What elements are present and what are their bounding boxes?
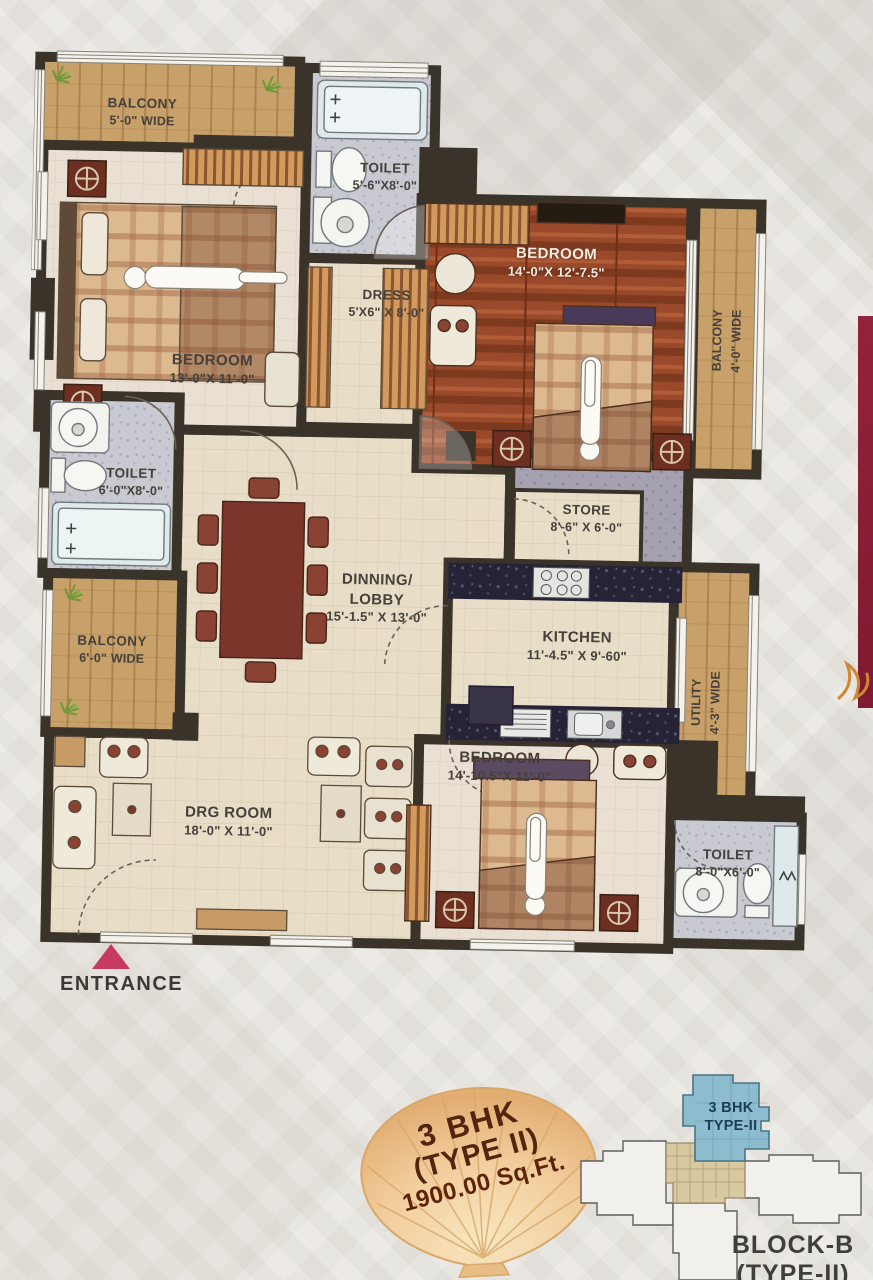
bedside-table-icon bbox=[600, 895, 639, 932]
armchair-icon bbox=[429, 305, 476, 366]
bedside-table-icon bbox=[652, 434, 691, 471]
bathtub-icon bbox=[52, 502, 171, 566]
room-label-balcony-top: BALCONY 5'-0" WIDE bbox=[107, 94, 177, 129]
shower-icon bbox=[773, 826, 799, 926]
sink-icon bbox=[567, 710, 622, 739]
coffee-table-icon bbox=[112, 783, 151, 836]
floor-plan-graphic bbox=[18, 50, 830, 965]
pelmet-icon bbox=[563, 306, 655, 326]
wardrobe-icon bbox=[306, 267, 333, 407]
floor-plan: BALCONY 5'-0" WIDE TOILET 5'-6"X8'-0" BE… bbox=[18, 50, 830, 965]
coffee-table-icon bbox=[320, 785, 361, 842]
loveseat-icon bbox=[613, 745, 666, 780]
block-wing-right bbox=[743, 1155, 861, 1223]
room-label-balcony-left: BALCONY 6'-0" WIDE bbox=[77, 632, 147, 667]
bedside-table-icon bbox=[436, 891, 475, 928]
round-table-icon bbox=[435, 253, 476, 294]
gold-ornament-icon bbox=[831, 648, 871, 704]
room-label-bedroom-left: BEDROOM 13'-0"X 11'-0" bbox=[169, 350, 255, 388]
stove-icon bbox=[533, 567, 590, 598]
bathtub-icon bbox=[317, 80, 428, 140]
entrance-label: ENTRANCE bbox=[60, 973, 280, 996]
wash-basin-icon bbox=[51, 402, 110, 453]
room-label-dress: DRESS 5'X6" X 8'-0" bbox=[348, 286, 425, 321]
room-label-balcony-right: BALCONY 4'-0" WIDE bbox=[709, 309, 746, 373]
block-key-map: 3 BHK TYPE-II BLOCK-B (TYPE-II) bbox=[573, 1063, 873, 1280]
armchair-icon bbox=[265, 352, 300, 407]
room-label-toilet-bottom: TOILET 8'-0"X6'-0" bbox=[695, 846, 760, 881]
room-label-kitchen: KITCHEN 11'-4.5" X 9'-60" bbox=[527, 627, 628, 665]
tv-unit-icon bbox=[537, 202, 625, 224]
entrance-triangle-icon bbox=[92, 944, 130, 969]
room-label-toilet-left: TOILET 6'-0"X8'-0" bbox=[99, 464, 164, 499]
fridge-icon bbox=[469, 686, 514, 725]
wardrobe-icon bbox=[425, 203, 530, 245]
room-label-dining-lobby: DINNING/ LOBBY 15'-1.5" X 13'-0" bbox=[326, 569, 428, 627]
bedside-table-icon bbox=[68, 160, 107, 197]
block-caption: BLOCK-B (TYPE-II) bbox=[703, 1231, 873, 1280]
room-label-utility: UTILITY 4'-3" WIDE bbox=[688, 671, 725, 735]
room-label-bedroom-master: BEDROOM 14'-0"X 12'-7.5" bbox=[508, 244, 606, 282]
room-label-store: STORE 8'-6" X 6'-0" bbox=[550, 501, 622, 536]
sofa-row-icon bbox=[363, 746, 412, 891]
brochure-page: BALCONY 5'-0" WIDE TOILET 5'-6"X8'-0" BE… bbox=[0, 0, 873, 1280]
room-label-toilet-top: TOILET 5'-6"X8'-0" bbox=[352, 159, 417, 194]
room-label-bedroom-bottom: BEDROOM 14'-10.5"X 11'-0" bbox=[448, 747, 552, 785]
wardrobe-icon bbox=[183, 148, 304, 186]
armchair-icon bbox=[308, 737, 361, 776]
block-highlight-label: 3 BHK TYPE-II bbox=[671, 1099, 791, 1135]
room-label-drg-room: DRG ROOM 18'-0" X 11'-0" bbox=[184, 802, 273, 840]
console-table-icon bbox=[197, 909, 287, 931]
side-table-icon bbox=[55, 736, 86, 767]
entrance-marker: ENTRANCE bbox=[60, 944, 280, 996]
person-figure bbox=[580, 356, 602, 460]
wardrobe-icon bbox=[405, 805, 431, 921]
sofa-icon bbox=[53, 786, 97, 869]
wash-basin-icon bbox=[313, 197, 370, 247]
block-wing-left bbox=[581, 1141, 673, 1225]
armchair-icon bbox=[99, 737, 148, 778]
bedside-table-icon bbox=[492, 430, 531, 467]
person-figure bbox=[525, 813, 547, 915]
